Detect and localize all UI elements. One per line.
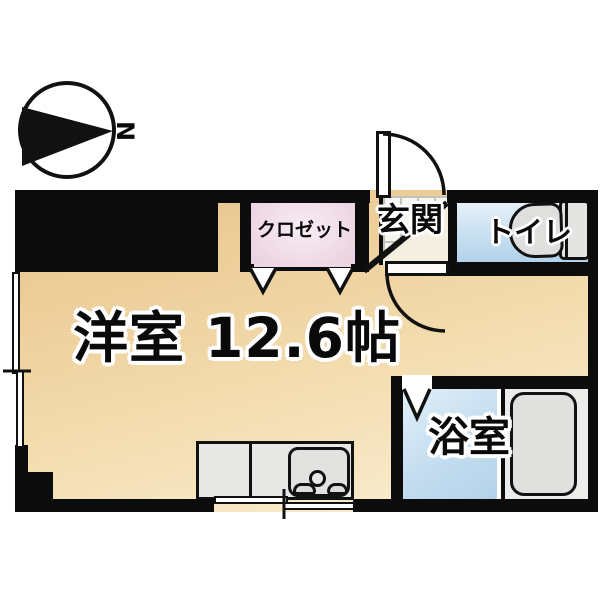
compass-north-arrow-icon [22,107,113,166]
bathtub [510,392,577,496]
kitchen-counter-divider [249,443,252,499]
wall-bottom-right [353,499,598,512]
wall-closet-right [355,190,369,272]
main-room-label: 洋室 12.6帖 [73,311,401,366]
compass-north-label: N [113,121,137,141]
kitchen-sink-drain-icon [309,470,326,487]
compass-circle [20,83,114,177]
entrance-room-door [385,261,449,276]
front-door [376,131,391,198]
kitchen-sink-right-detail [327,483,348,495]
window-left-pane-1 [12,272,20,374]
bathroom-label: 浴室 [428,417,510,458]
window-left-pane-2 [16,370,24,448]
wall-left-corner-base [15,472,53,512]
entrance-label: 玄関 [377,203,443,236]
front-door-swing-arc [383,134,444,195]
window-bottom-pane-1 [214,496,288,504]
wall-right [588,190,598,512]
wall-bathroom-left [391,376,403,500]
toilet-label: トイレ [485,218,572,247]
window-bottom-pane-2 [283,502,355,510]
closet-folding-door-line [248,267,358,271]
floorplan-canvas: 洋室 12.6帖 クロゼット 玄関 トイレ 浴室 N [0,0,600,600]
wall-closet-stub-right [351,264,369,272]
wall-closet-stub-left [240,264,254,272]
wall-bathroom-top-right [432,376,598,389]
wall-toilet-bottom [448,262,598,276]
wall-top-right [447,190,598,203]
wall-left-block [15,190,218,272]
closet-label: クロゼット [257,221,352,240]
wall-closet-left [240,198,251,272]
